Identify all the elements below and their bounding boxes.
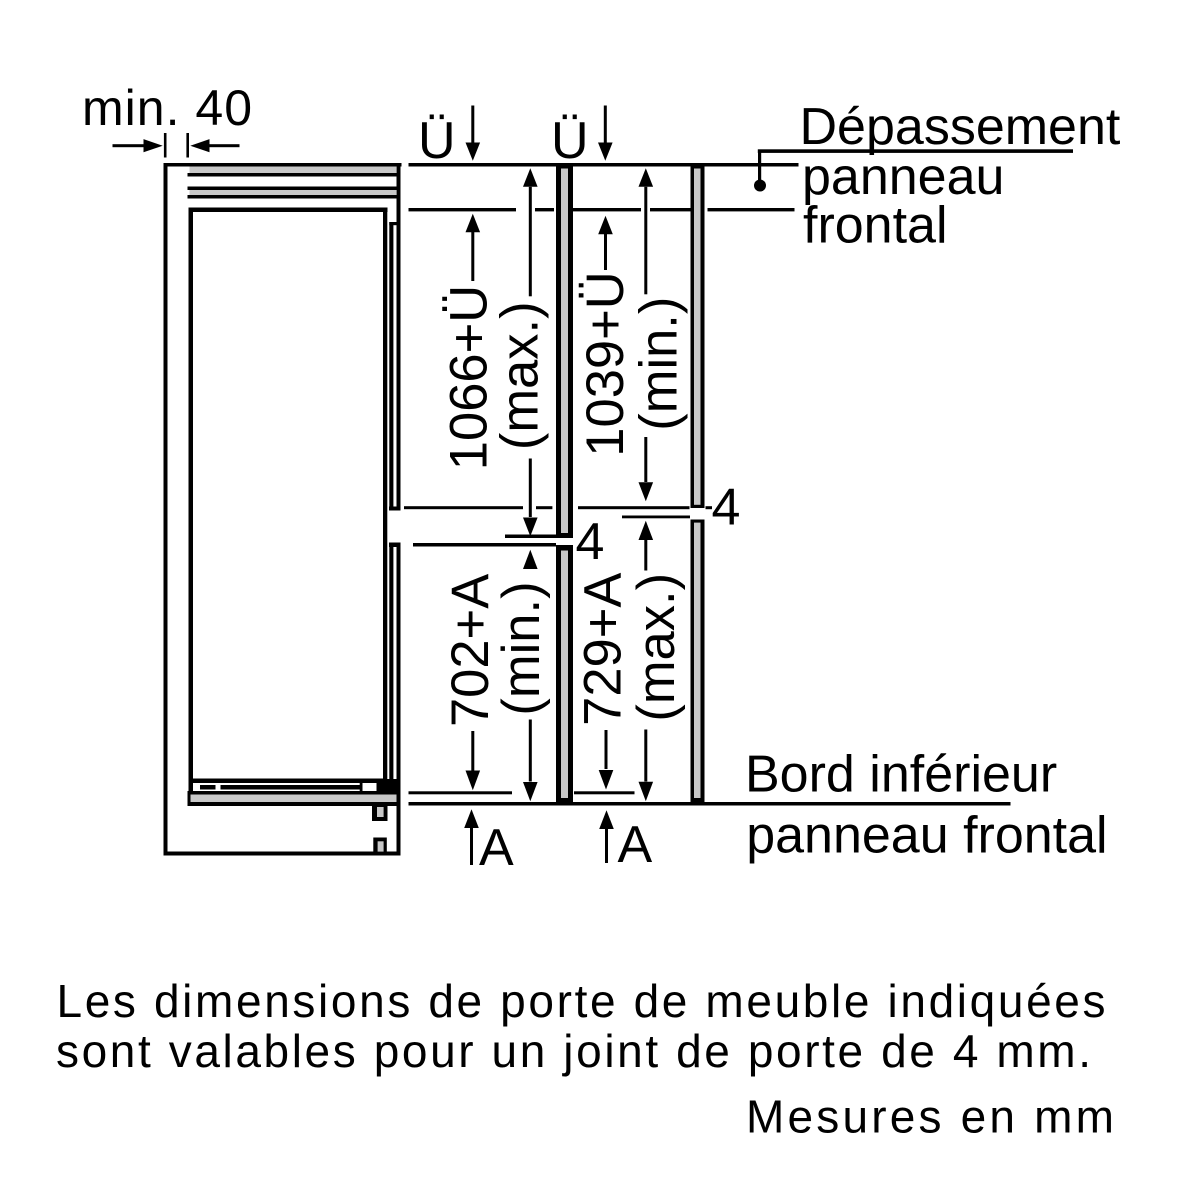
svg-text:Mesures en mm: Mesures en mm bbox=[746, 1091, 1114, 1143]
svg-text:min. 40: min. 40 bbox=[82, 80, 252, 136]
svg-text:frontal: frontal bbox=[803, 197, 948, 255]
svg-text:(min.): (min.) bbox=[492, 581, 551, 715]
svg-text:(min.): (min.) bbox=[630, 297, 689, 431]
svg-text:(max.): (max.) bbox=[627, 573, 686, 722]
svg-text:Les dimensions de porte de meu: Les dimensions de porte de meuble indiqu… bbox=[57, 975, 1106, 1027]
svg-text:729+A: 729+A bbox=[574, 573, 633, 726]
svg-text:4: 4 bbox=[576, 513, 605, 571]
svg-text:4: 4 bbox=[712, 479, 741, 537]
svg-text:Ü: Ü bbox=[551, 112, 589, 170]
svg-text:A: A bbox=[479, 819, 514, 877]
svg-text:1039+Ü: 1039+Ü bbox=[576, 271, 635, 456]
svg-text:A: A bbox=[618, 816, 653, 874]
svg-text:Ü: Ü bbox=[418, 112, 456, 170]
svg-text:Bord inférieur: Bord inférieur bbox=[745, 745, 1057, 803]
svg-text:(max.): (max.) bbox=[491, 301, 550, 450]
svg-text:panneau frontal: panneau frontal bbox=[746, 807, 1107, 865]
